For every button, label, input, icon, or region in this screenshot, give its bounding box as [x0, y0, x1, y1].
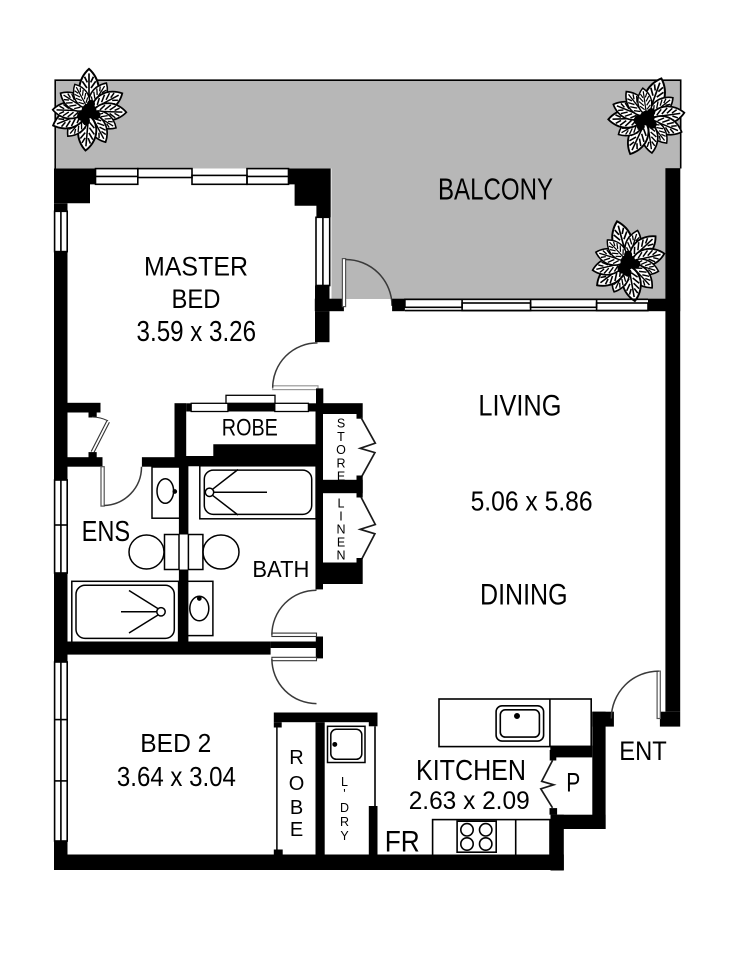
svg-text:R: R: [340, 815, 349, 829]
svg-text:N: N: [336, 523, 345, 537]
svg-text:DINING: DINING: [480, 578, 568, 611]
svg-text:KITCHEN: KITCHEN: [416, 755, 526, 787]
svg-text:': ': [343, 787, 345, 801]
svg-text:BED 2: BED 2: [140, 730, 211, 758]
svg-text:3.59 x 3.26: 3.59 x 3.26: [137, 316, 257, 348]
svg-text:5.06 x 5.86: 5.06 x 5.86: [471, 486, 593, 517]
svg-text:E: E: [290, 819, 303, 841]
svg-text:BALCONY: BALCONY: [438, 172, 553, 207]
svg-text:FR: FR: [385, 826, 420, 859]
svg-text:D: D: [340, 801, 349, 815]
svg-text:BED: BED: [172, 284, 221, 314]
svg-text:O: O: [289, 773, 305, 795]
svg-text:P: P: [566, 768, 580, 798]
svg-text:3.64 x 3.04: 3.64 x 3.04: [117, 761, 236, 792]
svg-text:BATH: BATH: [252, 556, 309, 582]
svg-text:I: I: [339, 510, 342, 524]
svg-text:R: R: [289, 747, 303, 769]
svg-text:L: L: [338, 497, 345, 511]
svg-text:S: S: [337, 417, 345, 431]
svg-text:B: B: [290, 797, 303, 819]
svg-text:ENT: ENT: [619, 736, 667, 766]
svg-text:ROBE: ROBE: [222, 415, 278, 442]
svg-text:ENS: ENS: [82, 516, 131, 548]
svg-text:2.63 x 2.09: 2.63 x 2.09: [409, 787, 530, 815]
svg-text:R: R: [336, 456, 345, 470]
svg-text:MASTER: MASTER: [144, 252, 248, 282]
svg-text:E: E: [337, 536, 345, 550]
svg-text:LIVING: LIVING: [478, 389, 561, 422]
svg-text:N: N: [336, 549, 345, 563]
svg-text:O: O: [336, 443, 346, 457]
svg-text:T: T: [337, 430, 345, 444]
svg-text:Y: Y: [340, 829, 349, 843]
